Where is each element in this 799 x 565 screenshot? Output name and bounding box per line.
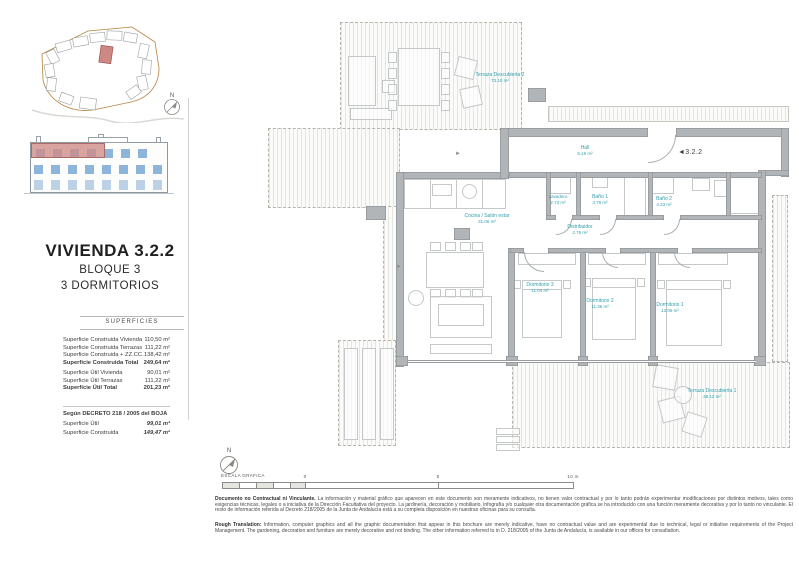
kitchen-island: [454, 228, 470, 240]
kitchen-counter-line: [482, 179, 483, 209]
surfaces-header: SUPERFICIES: [80, 319, 184, 325]
surface-value: 249,64 m²: [144, 360, 170, 368]
surface-row: Superficie Útil Vivienda90,01 m²: [63, 370, 170, 378]
legal-disclaimer-es: Documento no Contractual ni Vinculante. …: [215, 497, 793, 514]
bed-pillow: [592, 278, 636, 288]
outdoor-chair: [388, 84, 397, 95]
dining-chair: [472, 242, 483, 251]
surface-label: Superficie Construida Total: [63, 360, 138, 368]
dining-chair: [460, 242, 471, 251]
room-label-bano-2: Baño 24.23 m²: [648, 196, 680, 208]
glazing-line: [408, 360, 756, 363]
surface-label: Superficie Útil Vivienda: [63, 370, 123, 378]
room-label-lavadero: Lavadero2.73 m²: [543, 194, 573, 206]
wall-segment: [398, 172, 506, 179]
surface-label: Superficie Construida: [63, 430, 118, 436]
surface-value: 201,23 m²: [144, 385, 170, 393]
surface-value: 111,22 m²: [145, 378, 170, 386]
deck-terrace-left-strip: [383, 206, 397, 358]
outdoor-chair: [441, 100, 450, 111]
room-label-hall: Hall5.19 m²: [568, 145, 602, 157]
surface-value: 149,47 m²: [144, 430, 170, 436]
kitchen-hob: [432, 184, 452, 196]
site-plan: N: [26, 18, 191, 123]
rule: [63, 406, 170, 407]
kitchen-counter-line: [430, 179, 431, 209]
bathtub: [624, 176, 646, 218]
outdoor-chair: [441, 68, 450, 79]
scale-caption: ESCALA GRAFICA: [221, 473, 265, 478]
nightstand: [637, 278, 645, 287]
surface-label: Superficie Construida Terrazas: [63, 345, 142, 353]
terrace-step: [496, 444, 520, 451]
outdoor-sofa: [348, 56, 376, 106]
outdoor-chair: [388, 100, 397, 111]
surface-value: 138,42 m²: [144, 352, 170, 360]
room-label-distribuidor: Distribuidor2.76 m²: [558, 224, 602, 236]
nightstand: [657, 280, 665, 289]
dining-table: [426, 252, 484, 288]
elevation-chimney: [156, 137, 161, 143]
side-table: [408, 290, 424, 306]
room-label-terraza-1: Terraza Descubierta 138.12 m²: [676, 388, 748, 400]
room-label-dormitorio-2: Dormitorio 211.36 m²: [572, 298, 628, 310]
wall-segment: [758, 170, 766, 366]
surface-row: Superficie Construida Vivienda110,50 m²: [63, 337, 170, 345]
kitchen-counter-line: [456, 179, 457, 209]
rule: [80, 329, 184, 330]
wardrobe: [658, 253, 728, 265]
unit-entrance-tag: ◄3.2.2: [678, 149, 702, 156]
surface-value: 110,50 m²: [144, 337, 170, 345]
elevation-unit-highlight: [31, 143, 105, 158]
door-arc: [674, 252, 690, 268]
slope-arrow-icon: ►: [396, 264, 402, 270]
deck-terrace-right-strip: [772, 195, 788, 362]
bathroom-sink: [692, 178, 710, 191]
wall-segment: [572, 215, 600, 220]
surfaces-table: Superficie Construida Vivienda110,50 m² …: [63, 337, 170, 393]
wall-segment: [726, 172, 731, 220]
deck-terrace-bottom: [512, 362, 790, 448]
planter: [344, 348, 358, 440]
room-label-terraza-2: Terraza Descubierta 273.10 m²: [468, 72, 532, 84]
disclaimer-body-en: Information, computer graphics and all t…: [215, 522, 793, 534]
elevation-ground-line: [24, 193, 174, 194]
wall-segment: [616, 215, 664, 220]
unit-bedrooms: 3 DORMITORIOS: [10, 280, 210, 292]
surface-row: Superficie Construida Terrazas111,22 m²: [63, 345, 170, 353]
closet: [728, 176, 760, 214]
elevation-chimney: [36, 136, 41, 143]
terrace-step: [496, 436, 520, 443]
wall-segment: [548, 248, 606, 253]
room-label-cocina-salon: Cocina / Salón estar31.06 m²: [455, 213, 519, 225]
highlighted-building: [99, 45, 113, 64]
planter: [380, 348, 394, 440]
surface-row-total: Superficie Útil Total201,23 m²: [63, 385, 170, 393]
surface-label: Superficie Útil Terrazas: [63, 378, 123, 386]
door-arc: [524, 252, 544, 272]
wall-segment: [546, 215, 556, 220]
surface-row: Superficie Construida + ZZ.CC.138,42 m²: [63, 352, 170, 360]
site-buildings: [44, 31, 151, 110]
dining-chair: [445, 242, 456, 251]
unit-tag-text: 3.2.2: [685, 149, 702, 156]
terrace-planter-block: [528, 88, 546, 102]
wall-segment: [576, 172, 581, 220]
outdoor-chair: [388, 52, 397, 63]
north-label: N: [170, 93, 174, 99]
outdoor-armchair: [459, 85, 483, 109]
outdoor-dining-table: [398, 48, 440, 106]
door-arc: [600, 219, 616, 235]
north-compass-icon: N: [165, 93, 180, 115]
north-label: N: [227, 448, 231, 454]
outdoor-armchair: [652, 364, 679, 391]
outdoor-chair: [388, 68, 397, 79]
site-road: [32, 110, 184, 123]
wall-segment: [620, 248, 678, 253]
wall-segment: [692, 248, 762, 253]
scale-bar: [222, 482, 574, 489]
decree-row: Superficie Construida149,47 m²: [63, 430, 170, 436]
kitchen-counter: [404, 179, 506, 209]
rule: [80, 316, 184, 317]
door-arc: [664, 219, 680, 235]
decree-title: Según DECRETO 218 / 2005 del BOJA: [63, 411, 170, 417]
surface-label: Superficie Construida + ZZ.CC.: [63, 352, 144, 360]
surface-label: Superficie Construida Vivienda: [63, 337, 142, 345]
coffee-table: [438, 304, 484, 326]
decree-row: Superficie Útil99,01 m²: [63, 421, 170, 427]
surface-row-total: Superficie Construida Total249,64 m²: [63, 360, 170, 368]
brochure-page: N VIVIENDA 3.2.2 BLOQUE 3 3 DORMITORIOS …: [0, 0, 799, 565]
terrace-planter-block: [366, 206, 386, 220]
dining-chair: [430, 242, 441, 251]
outdoor-chair: [441, 84, 450, 95]
kitchen-sink: [462, 184, 477, 199]
deck-entry-walkway: [548, 106, 789, 122]
terrace-step: [496, 428, 520, 435]
surface-value: 99,01 m²: [147, 421, 170, 427]
surface-value: 90,01 m²: [147, 370, 170, 378]
room-label-bano-1: Baño 13.78 m²: [584, 194, 616, 206]
planter: [362, 348, 376, 440]
scale-tick-5: 5: [431, 474, 445, 479]
deck-terrace-left-upper: [268, 128, 400, 208]
wall-segment: [508, 248, 515, 360]
wall-segment: [500, 128, 509, 179]
door-arc: [602, 252, 618, 268]
tv-unit: [430, 344, 492, 354]
outdoor-sofa: [350, 108, 392, 120]
scale-tick-10: 10 m: [560, 474, 586, 479]
wall-segment: [680, 215, 762, 220]
room-label-dormitorio-1: Dormitorio 113.06 m²: [640, 302, 700, 314]
surface-value: 111,22 m²: [145, 345, 170, 353]
surface-label: Superficie Útil: [63, 421, 99, 427]
bed-pillow: [666, 280, 722, 290]
wall-segment: [676, 128, 789, 137]
outdoor-chair: [441, 52, 450, 63]
surface-row: Superficie Útil Terrazas111,22 m²: [63, 378, 170, 386]
surface-label: Superficie Útil Total: [63, 385, 117, 393]
slope-arrow-icon: ►: [455, 151, 461, 157]
elevation-windows-mid: [34, 165, 164, 174]
room-label-dormitorio-3: Dormitorio 311.04 m²: [512, 282, 568, 294]
washing-machine: [549, 176, 571, 194]
unit-title: VIVIENDA 3.2.2: [10, 241, 210, 261]
door-arc-entry: [648, 135, 676, 163]
scale-tick-0: 0: [298, 474, 312, 479]
wall-pillar: [396, 356, 408, 366]
wall-segment: [510, 248, 524, 253]
wall-segment: [502, 128, 648, 137]
elevation-windows-ground: [34, 180, 164, 190]
nightstand: [723, 280, 731, 289]
unit-block: BLOQUE 3: [10, 264, 210, 276]
legal-disclaimer-en: Rough Translation: Information, computer…: [215, 523, 793, 534]
